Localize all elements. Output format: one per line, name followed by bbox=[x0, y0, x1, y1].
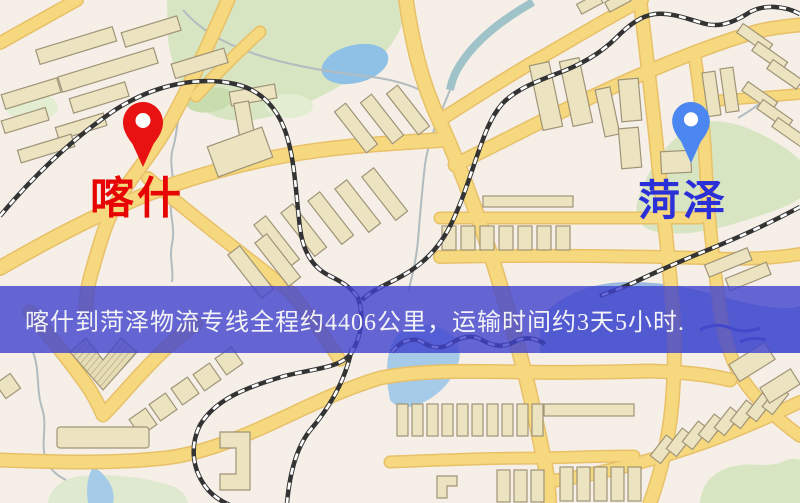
origin-pin-icon[interactable] bbox=[120, 101, 166, 169]
map-background bbox=[0, 0, 800, 503]
route-info-banner: 喀什到菏泽物流专线全程约4406公里，运输时间约3天5小时. bbox=[0, 286, 800, 353]
destination-city-label: 菏泽 bbox=[638, 181, 728, 223]
origin-city-label: 喀什 bbox=[90, 177, 184, 221]
logistics-route-map: 喀什 菏泽 喀什到菏泽物流专线全程约4406公里，运输时间约3天5小时. bbox=[0, 0, 800, 503]
route-info-text: 喀什到菏泽物流专线全程约4406公里，运输时间约3天5小时. bbox=[25, 302, 685, 337]
destination-pin-icon[interactable] bbox=[669, 101, 713, 165]
